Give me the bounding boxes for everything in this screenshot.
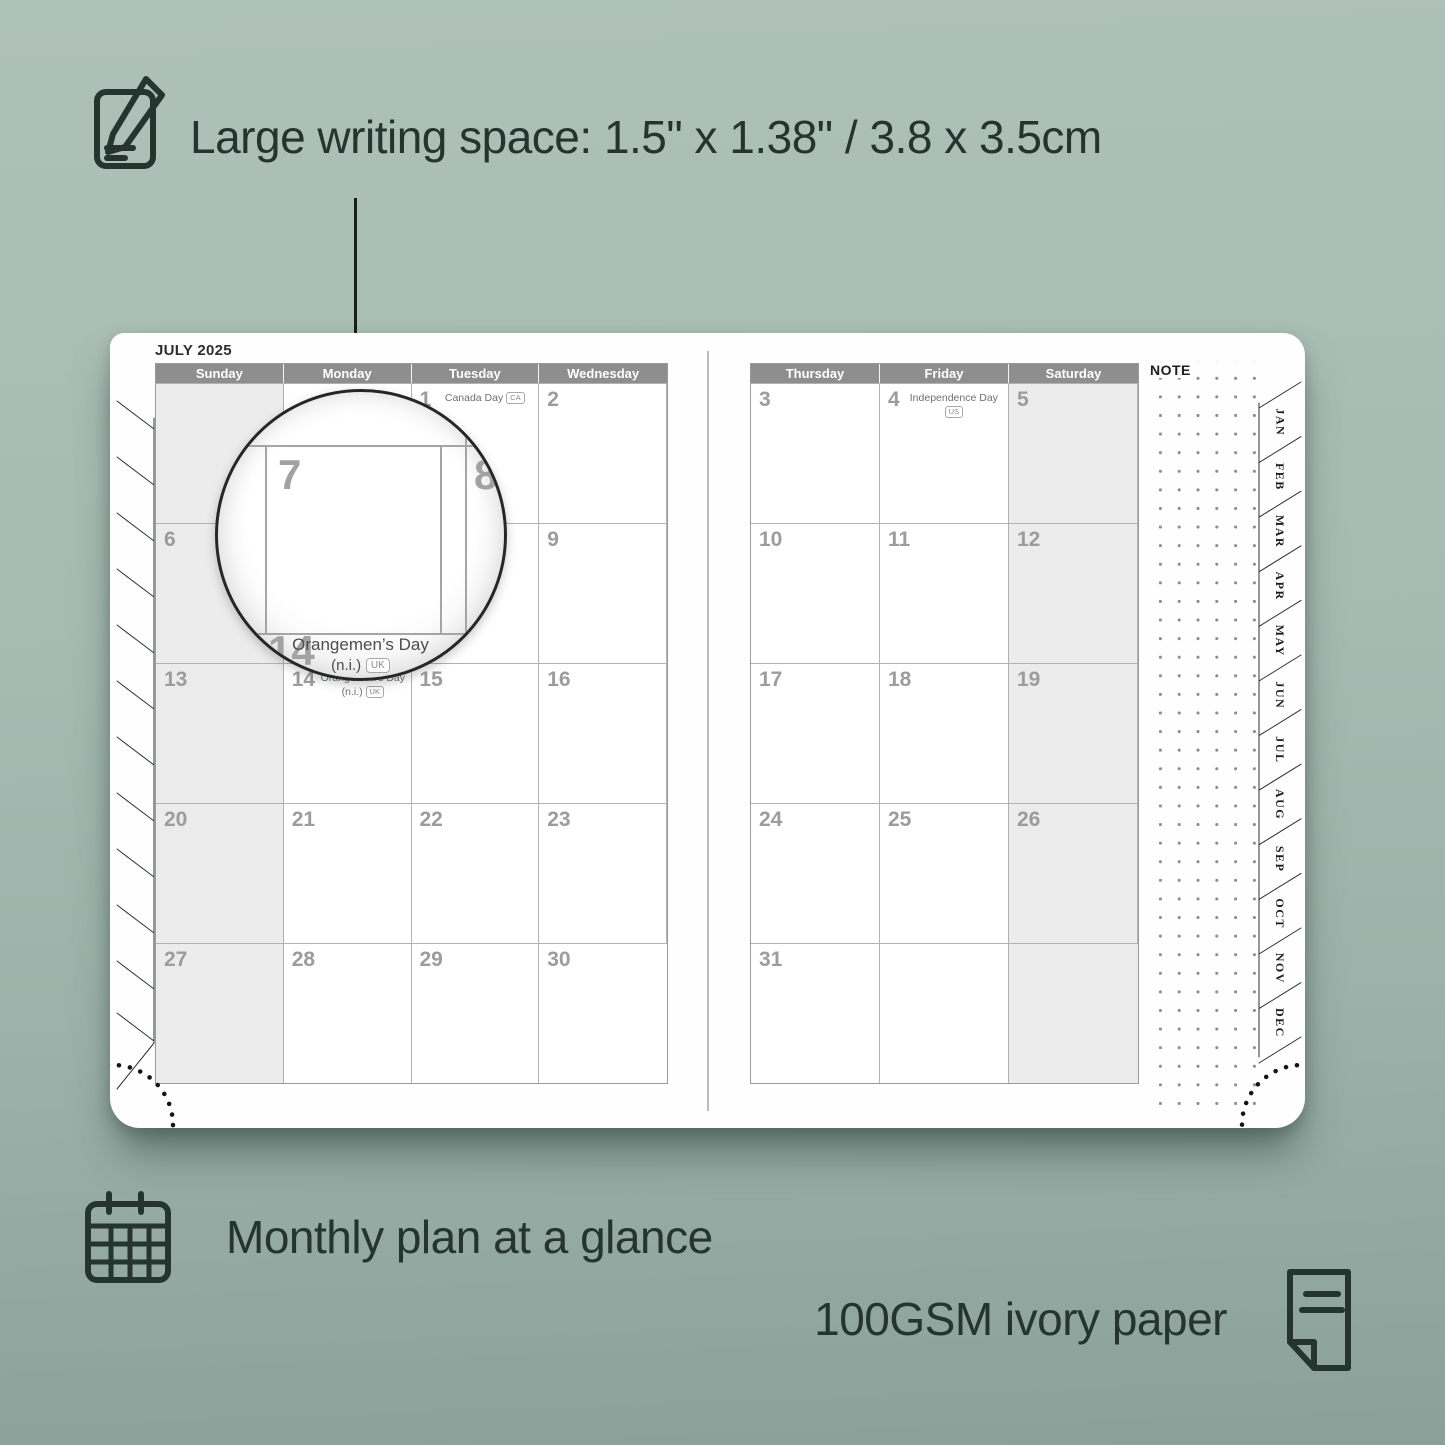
- bottom-left-annotation-text: Monthly plan at a glance: [226, 1212, 713, 1262]
- top-annotation-text: Large writing space: 1.5" x 1.38" / 3.8 …: [190, 112, 1102, 162]
- bottom-right-annotation-text: 100GSM ivory paper: [814, 1294, 1227, 1344]
- magnifier-circle: 7 8 14 Orangemen’s Day (n.i.) UK: [215, 389, 507, 681]
- writing-pad-pencil-icon: [83, 72, 183, 172]
- magnified-holiday: Orangemen’s Day (n.i.) UK: [258, 635, 463, 676]
- product-image-canvas: Large writing space: 1.5" x 1.38" / 3.8 …: [0, 0, 1445, 1445]
- calendar-icon: [78, 1188, 178, 1288]
- magnified-day-8: 8: [474, 454, 497, 496]
- paper-sheet-icon: [1274, 1266, 1360, 1376]
- magnified-day-7: 7: [278, 454, 301, 496]
- magnified-country-badge: UK: [366, 658, 390, 673]
